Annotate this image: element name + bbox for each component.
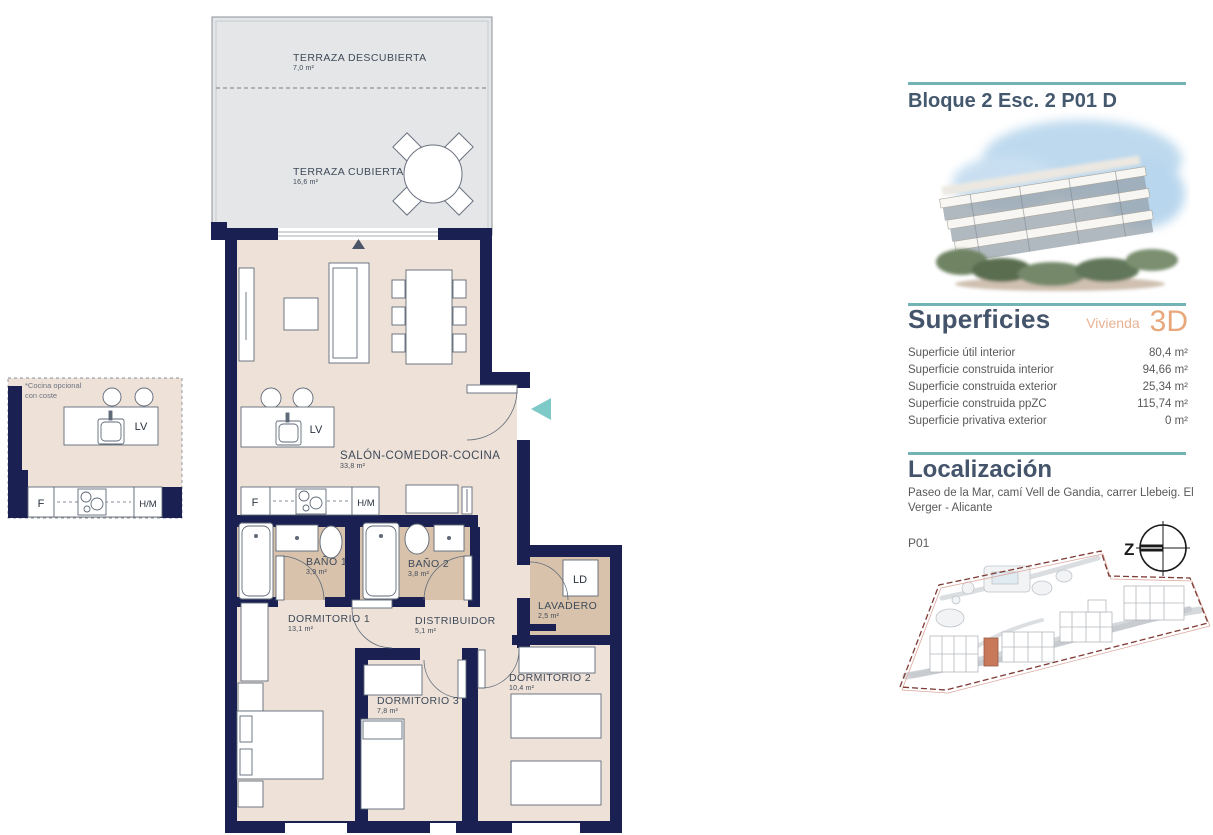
- toilet: [320, 526, 342, 558]
- dishwasher-label: LV: [135, 421, 148, 433]
- site-plan-map: [892, 548, 1212, 696]
- washer-label: LD: [573, 574, 587, 586]
- stool: [261, 388, 281, 408]
- superficies-header: Superficies Vivienda 3D: [908, 304, 1188, 335]
- table-row: Superficie útil interior80,4 m²: [908, 344, 1188, 361]
- terrace: [211, 17, 492, 240]
- building-rendering: [932, 112, 1190, 300]
- fridge-label: F: [252, 497, 259, 509]
- fridge-label: F: [38, 498, 45, 510]
- toilet: [405, 524, 429, 554]
- wardrobe: [364, 665, 422, 695]
- table-row: Superficie construida exterior25,34 m²: [908, 378, 1188, 395]
- building-blocks: [930, 586, 1184, 672]
- optional-kitchen-detail: [8, 378, 182, 518]
- nightstand: [238, 683, 263, 711]
- wardrobe: [241, 603, 268, 681]
- superficies-heading: Superficies: [908, 304, 1050, 335]
- table-row: Superficie construida interior94,66 m²: [908, 361, 1188, 378]
- vivienda-label: Vivienda: [1086, 315, 1139, 331]
- threed-label: 3D: [1150, 308, 1188, 335]
- dishwasher-label: LV: [310, 424, 323, 436]
- floor-plan-drawing: LV F H/M LD LV F H/M: [0, 0, 880, 835]
- highlighted-block: [984, 638, 998, 666]
- divider-line: [908, 452, 1186, 455]
- stool: [103, 388, 121, 406]
- address-text: Paseo de la Mar, camí Vell de Gandia, ca…: [908, 486, 1198, 516]
- faucet: [286, 413, 289, 422]
- tv-unit: [239, 268, 254, 361]
- entrance-arrow-icon: [531, 398, 551, 420]
- table-row: Superficie construida ppZC115,74 m²: [908, 395, 1188, 412]
- hob: [78, 489, 106, 515]
- cabinet: [406, 485, 458, 513]
- entry-door-opening: [517, 388, 530, 440]
- terrace-sliding-door: [278, 228, 438, 240]
- oven-microwave-label: H/M: [357, 498, 375, 509]
- stool: [293, 388, 313, 408]
- coffee-table: [284, 298, 318, 330]
- bed: [511, 694, 601, 738]
- terrace-table: [393, 133, 473, 215]
- superficies-table: Superficie útil interior80,4 m² Superfic…: [908, 344, 1188, 429]
- localizacion-heading: Localización: [908, 456, 1052, 484]
- closet: [519, 647, 595, 673]
- divider-line: [908, 82, 1186, 85]
- stool: [135, 388, 153, 406]
- bed: [511, 761, 601, 805]
- bottom-windows: [285, 823, 580, 833]
- faucet: [109, 411, 112, 420]
- bedroom2-furniture: [511, 647, 601, 805]
- unit-title: Bloque 2 Esc. 2 P01 D: [908, 90, 1198, 113]
- floorplan-sheet: LV F H/M LD LV F H/M TERRAZA DESCUBIERTA…: [0, 0, 1213, 835]
- dining-table: [406, 270, 452, 364]
- table-row: Superficie privativa exterior0 m²: [908, 412, 1188, 429]
- oven-microwave-label: H/M: [139, 499, 157, 510]
- nightstand: [238, 781, 263, 807]
